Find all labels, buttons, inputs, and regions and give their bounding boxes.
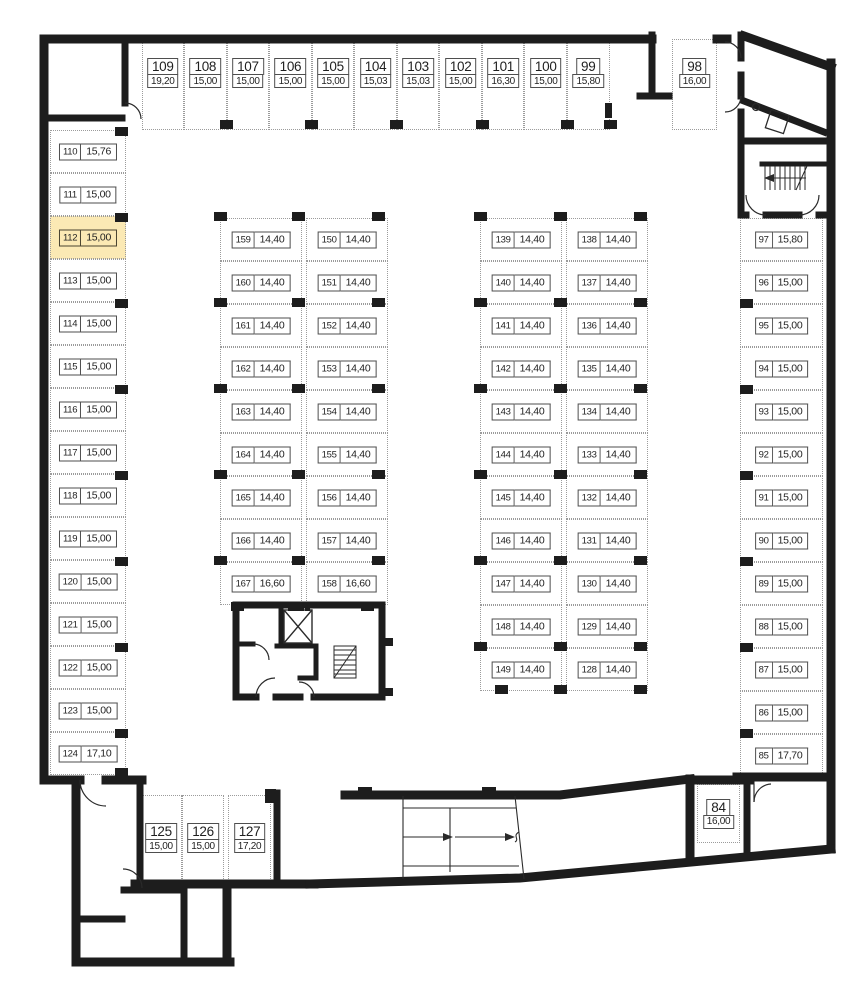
spot-area: 14,40 [255, 231, 291, 248]
spot-area: 15,00 [82, 659, 118, 676]
spot-area: 14,40 [601, 618, 637, 635]
spot-label: 12914,40 [578, 618, 637, 635]
spot-area: 14,40 [601, 532, 637, 549]
spot-area: 14,40 [341, 489, 377, 506]
spot-label: 10615,00 [275, 58, 307, 88]
spot-label: 10815,00 [190, 58, 222, 88]
spot-label: 9615,00 [755, 274, 809, 291]
spot-number: 156 [318, 489, 341, 506]
spot-number: 86 [755, 704, 773, 721]
spot-number: 141 [492, 317, 515, 334]
spot-area: 14,40 [341, 403, 377, 420]
spot-label: 14014,40 [492, 274, 551, 291]
spot-label: 10116,30 [487, 58, 519, 88]
spot-label: 16214,40 [232, 360, 291, 377]
spot-number: 102 [445, 58, 477, 75]
spot-number: 140 [492, 274, 515, 291]
spot-number: 164 [232, 446, 255, 463]
spot-area: 14,40 [515, 489, 551, 506]
spot-number: 153 [318, 360, 341, 377]
spot-area: 15,00 [773, 317, 809, 334]
spot-label: 13014,40 [578, 575, 637, 592]
spot-label: 12515,00 [145, 823, 177, 853]
spot-number: 92 [755, 446, 773, 463]
spot-area: 16,00 [679, 74, 711, 88]
spot-number: 136 [578, 317, 601, 334]
spot-number: 143 [492, 403, 515, 420]
spot-label: 13414,40 [578, 403, 637, 420]
spot-area: 14,40 [601, 446, 637, 463]
spot-number: 91 [755, 489, 773, 506]
spot-number: 109 [147, 58, 179, 75]
spot-area: 15,00 [82, 573, 118, 590]
spot-label: 12417,10 [59, 745, 118, 762]
spot-area: 14,40 [515, 403, 551, 420]
spot-label: 16614,40 [232, 532, 291, 549]
spot-area: 15,00 [317, 74, 349, 88]
spot-number: 113 [59, 272, 81, 289]
spot-number: 94 [755, 360, 773, 377]
spot-area: 14,40 [255, 403, 291, 420]
spot-area: 15,00 [773, 360, 809, 377]
spot-area: 14,40 [255, 274, 291, 291]
spot-number: 111 [59, 186, 81, 203]
spot-label: 10415,03 [360, 58, 392, 88]
spot-number: 152 [318, 317, 341, 334]
spot-number: 124 [59, 745, 82, 762]
spot-label: 14414,40 [492, 446, 551, 463]
spot-label: 8416,00 [703, 799, 735, 829]
spot-area: 15,00 [81, 272, 117, 289]
spot-area: 14,40 [515, 446, 551, 463]
spot-area: 14,40 [601, 661, 637, 678]
spot-area: 15,03 [360, 74, 392, 88]
spot-label: 11915,00 [59, 530, 117, 547]
spot-area: 14,40 [255, 317, 291, 334]
spot-number: 123 [59, 702, 82, 719]
spot-area: 14,40 [601, 360, 637, 377]
spot-area: 15,00 [190, 74, 222, 88]
spot-area: 14,40 [515, 231, 551, 248]
spot-label: 13614,40 [578, 317, 637, 334]
spot-label: 9015,00 [755, 532, 809, 549]
spot-number: 104 [360, 58, 392, 75]
spot-area: 14,40 [515, 661, 551, 678]
spot-label: 16314,40 [232, 403, 291, 420]
spot-number: 126 [187, 823, 219, 840]
spot-area: 15,00 [81, 444, 117, 461]
spot-area: 14,40 [601, 575, 637, 592]
spot-area: 15,80 [573, 74, 605, 88]
spot-number: 99 [576, 58, 600, 75]
spot-label: 13814,40 [578, 231, 637, 248]
spot-number: 161 [232, 317, 255, 334]
spot-number: 159 [232, 231, 255, 248]
spot-number: 115 [59, 358, 81, 375]
spot-label: 16414,40 [232, 446, 291, 463]
spot-area: 15,00 [773, 489, 809, 506]
spot-number: 158 [318, 575, 341, 592]
spot-label: 14314,40 [492, 403, 551, 420]
spot-number: 110 [59, 143, 81, 160]
spot-label: 15714,40 [318, 532, 377, 549]
spot-area: 14,40 [601, 231, 637, 248]
spot-label: 10315,03 [402, 58, 434, 88]
spot-area: 14,40 [601, 274, 637, 291]
spot-number: 155 [318, 446, 341, 463]
spot-area: 14,40 [601, 489, 637, 506]
spot-number: 101 [487, 58, 519, 75]
spot-labels-layer: 10919,2010815,0010715,0010615,0010515,00… [0, 0, 868, 999]
spot-label: 15514,40 [318, 446, 377, 463]
spot-area: 16,30 [487, 74, 519, 88]
spot-label: 8815,00 [755, 618, 809, 635]
spot-number: 107 [232, 58, 264, 75]
spot-area: 14,40 [341, 360, 377, 377]
spot-area: 15,00 [81, 315, 117, 332]
spot-label: 14614,40 [492, 532, 551, 549]
spot-number: 89 [755, 575, 773, 592]
spot-label: 13514,40 [578, 360, 637, 377]
spot-label: 11215,00 [59, 229, 117, 246]
spot-area: 14,40 [515, 317, 551, 334]
spot-label: 12015,00 [59, 573, 118, 590]
spot-area: 15,00 [275, 74, 307, 88]
spot-number: 128 [578, 661, 601, 678]
spot-area: 15,00 [773, 661, 809, 678]
spot-label: 15414,40 [318, 403, 377, 420]
spot-number: 151 [318, 274, 341, 291]
spot-label: 11715,00 [59, 444, 117, 461]
spot-label: 12717,20 [234, 823, 266, 853]
spot-number: 163 [232, 403, 255, 420]
spot-number: 144 [492, 446, 515, 463]
spot-area: 15,00 [773, 704, 809, 721]
spot-number: 112 [59, 229, 81, 246]
spot-number: 157 [318, 532, 341, 549]
spot-label: 15014,40 [318, 231, 377, 248]
spot-label: 10215,00 [445, 58, 477, 88]
spot-area: 14,40 [515, 575, 551, 592]
spot-label: 11415,00 [59, 315, 117, 332]
spot-area: 14,40 [515, 360, 551, 377]
spot-label: 14114,40 [492, 317, 551, 334]
spot-number: 129 [578, 618, 601, 635]
spot-number: 131 [578, 532, 601, 549]
spot-area: 15,00 [82, 702, 118, 719]
spot-number: 93 [755, 403, 773, 420]
spot-number: 105 [317, 58, 349, 75]
spot-label: 15114,40 [318, 274, 377, 291]
spot-label: 12315,00 [59, 702, 118, 719]
spot-label: 11515,00 [59, 358, 117, 375]
spot-number: 85 [755, 747, 773, 764]
spot-area: 15,00 [81, 186, 117, 203]
spot-area: 14,40 [255, 489, 291, 506]
spot-number: 95 [755, 317, 773, 334]
spot-area: 15,00 [773, 274, 809, 291]
spot-area: 15,00 [773, 446, 809, 463]
spot-label: 13914,40 [492, 231, 551, 248]
spot-area: 15,00 [530, 74, 562, 88]
spot-number: 133 [578, 446, 601, 463]
spot-label: 9816,00 [679, 58, 711, 88]
spot-number: 134 [578, 403, 601, 420]
spot-area: 14,40 [515, 274, 551, 291]
spot-area: 14,40 [341, 231, 377, 248]
spot-label: 13114,40 [578, 532, 637, 549]
spot-area: 15,00 [82, 616, 118, 633]
spot-number: 122 [59, 659, 82, 676]
spot-area: 14,40 [515, 532, 551, 549]
spot-area: 15,00 [773, 403, 809, 420]
spot-label: 16716,60 [232, 575, 291, 592]
spot-label: 13714,40 [578, 274, 637, 291]
spot-label: 9315,00 [755, 403, 809, 420]
spot-label: 11015,76 [59, 143, 117, 160]
spot-area: 15,00 [445, 74, 477, 88]
spot-area: 16,60 [255, 575, 291, 592]
spot-area: 14,40 [341, 446, 377, 463]
spot-number: 162 [232, 360, 255, 377]
spot-number: 87 [755, 661, 773, 678]
spot-label: 8517,70 [755, 747, 809, 764]
spot-number: 90 [755, 532, 773, 549]
spot-area: 15,00 [81, 229, 117, 246]
spot-number: 135 [578, 360, 601, 377]
spot-label: 9715,80 [755, 231, 809, 248]
spot-area: 15,00 [145, 839, 177, 853]
spot-label: 16014,40 [232, 274, 291, 291]
spot-area: 15,00 [773, 575, 809, 592]
spot-area: 16,00 [703, 815, 735, 829]
spot-area: 19,20 [147, 74, 179, 88]
spot-label: 9215,00 [755, 446, 809, 463]
spot-number: 137 [578, 274, 601, 291]
spot-number: 160 [232, 274, 255, 291]
spot-number: 96 [755, 274, 773, 291]
spot-number: 116 [59, 401, 81, 418]
spot-label: 16114,40 [232, 317, 291, 334]
spot-area: 15,00 [81, 530, 117, 547]
spot-label: 9115,00 [755, 489, 809, 506]
spot-area: 15,00 [232, 74, 264, 88]
spot-label: 10515,00 [317, 58, 349, 88]
spot-label: 8915,00 [755, 575, 809, 592]
spot-label: 15314,40 [318, 360, 377, 377]
spot-number: 150 [318, 231, 341, 248]
spot-label: 10715,00 [232, 58, 264, 88]
spot-area: 15,00 [187, 839, 219, 853]
spot-label: 14714,40 [492, 575, 551, 592]
spot-label: 8715,00 [755, 661, 809, 678]
spot-area: 14,40 [601, 403, 637, 420]
spot-area: 14,40 [255, 446, 291, 463]
spot-area: 15,00 [773, 618, 809, 635]
spot-number: 98 [682, 58, 706, 75]
spot-label: 13214,40 [578, 489, 637, 506]
spot-number: 118 [59, 487, 81, 504]
spot-number: 106 [275, 58, 307, 75]
spot-area: 14,40 [255, 360, 291, 377]
spot-number: 165 [232, 489, 255, 506]
spot-label: 12215,00 [59, 659, 118, 676]
spot-area: 14,40 [341, 274, 377, 291]
spot-area: 16,60 [341, 575, 377, 592]
spot-number: 148 [492, 618, 515, 635]
spot-number: 108 [190, 58, 222, 75]
spot-number: 117 [59, 444, 81, 461]
spot-area: 14,40 [255, 532, 291, 549]
spot-number: 97 [755, 231, 773, 248]
spot-label: 9915,80 [573, 58, 605, 88]
spot-number: 142 [492, 360, 515, 377]
spot-number: 130 [578, 575, 601, 592]
spot-label: 16514,40 [232, 489, 291, 506]
spot-area: 15,00 [81, 401, 117, 418]
spot-label: 12115,00 [59, 616, 118, 633]
spot-area: 14,40 [601, 317, 637, 334]
spot-area: 15,80 [773, 231, 809, 248]
spot-area: 14,40 [515, 618, 551, 635]
spot-label: 12615,00 [187, 823, 219, 853]
spot-label: 12814,40 [578, 661, 637, 678]
spot-label: 10015,00 [530, 58, 562, 88]
spot-number: 88 [755, 618, 773, 635]
spot-label: 9515,00 [755, 317, 809, 334]
spot-number: 84 [706, 799, 730, 816]
spot-label: 11115,00 [59, 186, 116, 203]
spot-label: 14514,40 [492, 489, 551, 506]
spot-area: 15,03 [402, 74, 434, 88]
spot-number: 114 [59, 315, 81, 332]
spot-number: 121 [59, 616, 82, 633]
spot-label: 11815,00 [59, 487, 117, 504]
spot-number: 145 [492, 489, 515, 506]
spot-number: 146 [492, 532, 515, 549]
spot-label: 15214,40 [318, 317, 377, 334]
spot-area: 14,40 [341, 532, 377, 549]
spot-label: 14914,40 [492, 661, 551, 678]
spot-label: 15914,40 [232, 231, 291, 248]
spot-area: 17,10 [82, 745, 118, 762]
spot-number: 127 [234, 823, 266, 840]
spot-number: 103 [402, 58, 434, 75]
spot-label: 9415,00 [755, 360, 809, 377]
spot-number: 132 [578, 489, 601, 506]
spot-label: 14214,40 [492, 360, 551, 377]
spot-number: 138 [578, 231, 601, 248]
spot-area: 15,76 [81, 143, 117, 160]
spot-label: 15614,40 [318, 489, 377, 506]
spot-number: 120 [59, 573, 82, 590]
spot-label: 11315,00 [59, 272, 117, 289]
spot-area: 15,00 [81, 487, 117, 504]
spot-number: 139 [492, 231, 515, 248]
spot-label: 8615,00 [755, 704, 809, 721]
spot-label: 10919,20 [147, 58, 179, 88]
spot-number: 167 [232, 575, 255, 592]
spot-number: 154 [318, 403, 341, 420]
spot-area: 15,00 [81, 358, 117, 375]
spot-area: 17,70 [773, 747, 809, 764]
floor-plan: 10919,2010815,0010715,0010615,0010515,00… [0, 0, 868, 999]
spot-number: 166 [232, 532, 255, 549]
spot-area: 17,20 [234, 839, 266, 853]
spot-number: 147 [492, 575, 515, 592]
spot-label: 14814,40 [492, 618, 551, 635]
spot-number: 100 [530, 58, 562, 75]
spot-label: 15816,60 [318, 575, 377, 592]
spot-number: 149 [492, 661, 515, 678]
spot-area: 14,40 [341, 317, 377, 334]
spot-label: 13314,40 [578, 446, 637, 463]
spot-label: 11615,00 [59, 401, 117, 418]
spot-number: 125 [145, 823, 177, 840]
spot-area: 15,00 [773, 532, 809, 549]
spot-number: 119 [59, 530, 81, 547]
